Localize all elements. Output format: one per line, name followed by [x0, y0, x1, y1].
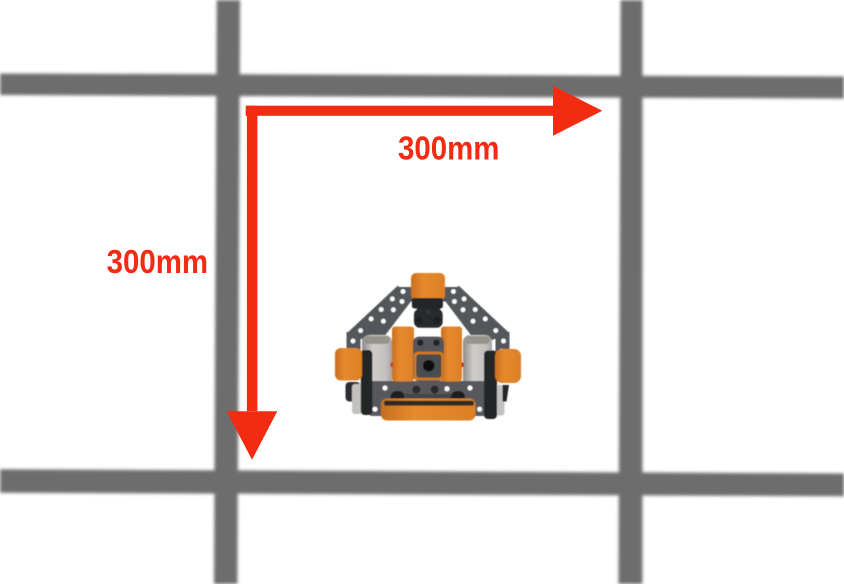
svg-text:300mm: 300mm: [398, 129, 500, 166]
svg-text:300mm: 300mm: [107, 243, 209, 280]
